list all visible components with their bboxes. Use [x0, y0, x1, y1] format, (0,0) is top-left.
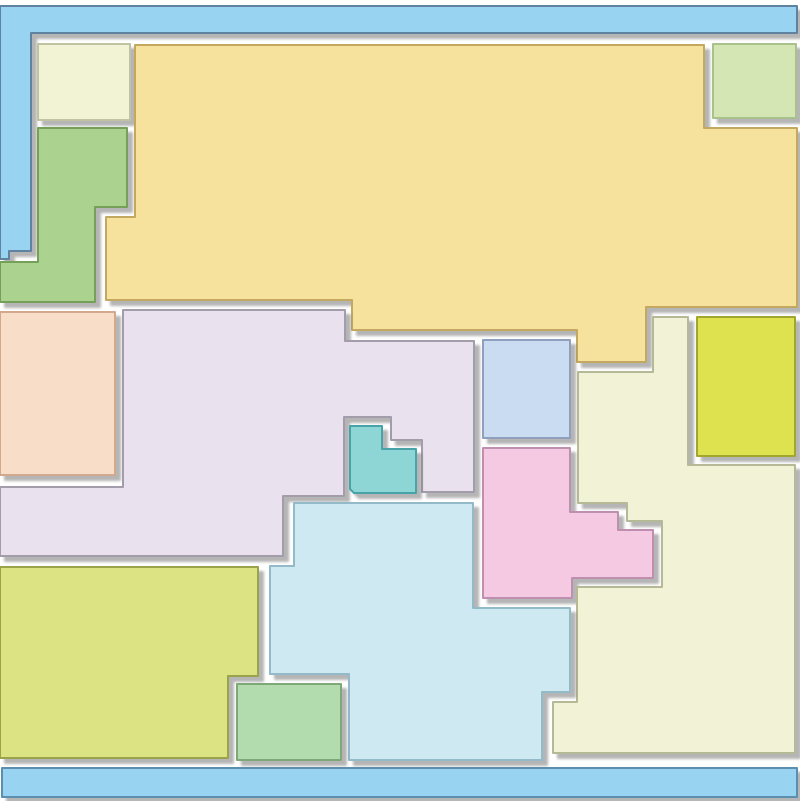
region-pale-green-square-top-right: [713, 44, 796, 118]
region-bottom-bar-blue: [2, 768, 797, 797]
region-periwinkle-rect-center: [483, 340, 570, 438]
mosaic-canvas: [0, 0, 800, 801]
region-chartreuse-rect-right: [697, 317, 795, 456]
region-pale-cream-rect-top-left: [38, 44, 130, 120]
region-mint-rect-bottom: [237, 684, 341, 760]
region-lime-bottom-left: [0, 567, 258, 758]
region-peach-rect-left: [0, 312, 115, 475]
mosaic-stage: [0, 0, 800, 801]
